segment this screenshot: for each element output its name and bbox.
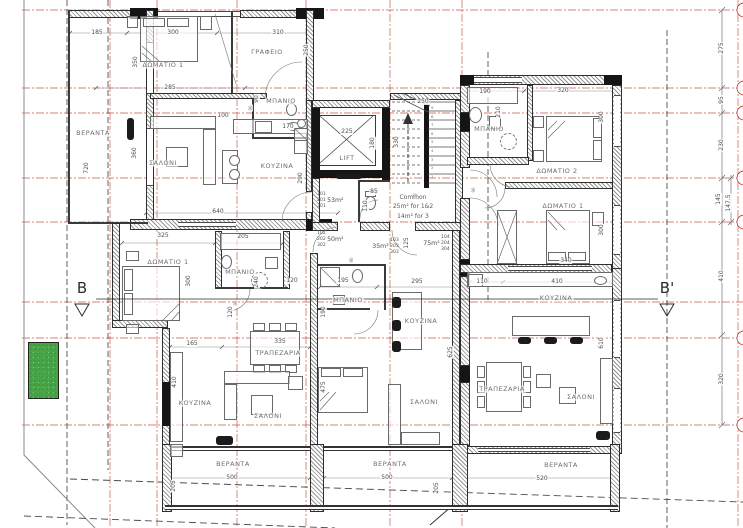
stair-step-number: 5 (431, 140, 433, 144)
dimension-label: 205 (236, 234, 249, 240)
room-label: ΜΠΑΝΙΟ (265, 98, 297, 105)
dimension-label: 147.5 (726, 193, 732, 212)
dimension-label: 335 (273, 339, 286, 345)
dimension-label: 230 (719, 138, 725, 151)
room-label: ΔΩΜΑΤΙΟ 1 (146, 259, 189, 266)
unit-numbers: 10320330335m² (390, 238, 399, 257)
dimension-label: 325 (156, 233, 169, 239)
dimension-label: 250 (416, 99, 429, 105)
dimension-label: 205 (434, 481, 440, 494)
room-label: ΔΩΜΑΤΙΟ 1 (541, 203, 584, 210)
stair-step-number: 4 (431, 149, 433, 153)
unit-area: 35m² (372, 243, 388, 251)
room-label: ΣΑΛΟΝΙ (253, 413, 283, 420)
dimension-label: 240 (254, 275, 260, 288)
dimension-label: 120 (228, 305, 234, 318)
floor-plan: B B' Common 25m² for 1&2 14m² for 3 ΔΩΜΑ… (0, 0, 743, 528)
dimension-label: 300 (166, 30, 179, 36)
dimension-label: 110 (363, 199, 369, 212)
dimension-label: 500 (225, 475, 238, 481)
stair-step-number: 9 (431, 106, 433, 110)
unit-numbers: 10220230250m² (317, 231, 326, 250)
section-marker-b-prime: B' (660, 279, 674, 297)
dimension-label: 190 (321, 305, 327, 318)
unit-area: 53m² (327, 197, 343, 205)
room-label: ΜΠΑΝΙΟ (332, 297, 364, 304)
unit-number: 303 (390, 250, 399, 256)
dimension-label: 410 (719, 269, 725, 282)
dimension-label: 210 (496, 105, 502, 118)
dimension-label: 320 (719, 372, 725, 385)
dimension-label: 190 (478, 89, 491, 95)
dimension-label: 120 (285, 278, 298, 284)
room-label: ΜΠΑΝΙΟ (224, 269, 256, 276)
furniture-details (142, 46, 565, 410)
dimension-label: 285 (163, 85, 176, 91)
dimension-label: 145 (716, 192, 722, 205)
dimension-label: 290 (298, 171, 304, 184)
dimension-label: 300 (599, 223, 605, 236)
dimension-label: 640 (211, 209, 224, 215)
unit-numbers: 10420430475m² (441, 235, 450, 254)
dimension-label: 475 (321, 380, 327, 393)
room-label: ΔΩΜΑΤΙΟ 1 (141, 62, 184, 69)
room-label: LIFT (338, 155, 355, 162)
dimension-label: 225 (340, 129, 353, 135)
section-line (75, 299, 674, 316)
room-label: ΚΟΥΖΙΝΑ (404, 318, 439, 325)
dimension-label: 295 (410, 279, 423, 285)
common-area-note: Common 25m² for 1&2 14m² for 3 (393, 193, 433, 221)
unit-area: 50m² (327, 236, 343, 244)
dimension-label: 500 (380, 475, 393, 481)
room-label: ΤΡΑΠΕΖΑΡΙΑ (478, 386, 526, 393)
dimension-label: 275 (719, 41, 725, 54)
dimension-label: 410 (172, 375, 178, 388)
stair-step-number: 1 (431, 175, 433, 179)
dimension-label: 90 (249, 104, 253, 111)
dimension-label: 350 (133, 55, 139, 68)
dimension-label: 610 (599, 336, 605, 349)
overlay (0, 0, 743, 528)
dimension-label: 90 (254, 94, 260, 104)
dimension-label: 90 (472, 186, 476, 193)
room-label: ΔΩΜΑΤΙΟ 2 (535, 168, 578, 175)
stair-step-number: 6 (431, 132, 433, 136)
dimension-label: 205 (171, 479, 177, 492)
dimension-label: 180 (370, 136, 376, 149)
stair-arrow (403, 113, 413, 182)
unit-numbers: 10120130153m² (317, 192, 326, 211)
dimension-label: 330 (394, 135, 400, 148)
stair-step-number: 2 (431, 166, 433, 170)
room-label: ΒΕΡΑΝΤΑ (543, 462, 579, 469)
dimension-label: 310 (271, 30, 284, 36)
dimension-label: 340 (559, 258, 572, 264)
room-label: ΚΟΥΖΙΝΑ (260, 163, 295, 170)
dimension-label: 125 (404, 236, 410, 249)
dimension-label: 90 (234, 299, 238, 306)
dimension-label: 320 (556, 88, 569, 94)
stair-count: 19 (412, 193, 417, 197)
section-marker-b: B (77, 279, 87, 297)
dimension-label: 300 (599, 110, 605, 123)
room-label: ΒΕΡΑΝΤΑ (372, 461, 408, 468)
room-label: ΣΑΛΟΝΙ (148, 160, 178, 167)
unit-area: 75m² (423, 240, 439, 248)
dimension-label: 300 (186, 274, 192, 287)
room-label: ΣΑΛΟΝΙ (566, 394, 596, 401)
stair-treads (392, 94, 455, 183)
dimension-label: 360 (132, 146, 138, 159)
unit-number: 302 (317, 243, 326, 249)
dimension-label: 185 (90, 30, 103, 36)
room-label: ΚΟΥΖΙΝΑ (178, 400, 213, 407)
dimension-label: 250 (304, 43, 310, 56)
unit-number: 301 (317, 204, 326, 210)
room-label: ΜΠΑΝΙΟ (473, 126, 505, 133)
room-label: ΚΟΥΖΙΝΑ (539, 295, 574, 302)
dimension-label: 85 (369, 189, 379, 195)
stair-step-number: 8 (431, 115, 433, 119)
room-label: ΤΡΑΠΕΖΑΡΙΑ (254, 350, 302, 357)
common-line2: 25m² for 1&2 (393, 202, 433, 211)
dimension-label: 100 (216, 113, 229, 119)
dimension-label: 720 (84, 161, 90, 174)
dimension-label: 90 (350, 256, 354, 263)
dimension-label: 195 (336, 278, 349, 284)
dimension-label: 170 (281, 124, 294, 130)
unit-number: 304 (441, 247, 450, 253)
room-label: ΣΑΛΟΝΙ (409, 399, 439, 406)
dimension-label: 95 (719, 95, 725, 105)
dimension-label: 410 (550, 279, 563, 285)
room-label: ΒΕΡΑΝΤΑ (215, 461, 251, 468)
stair-step-number: 7 (431, 123, 433, 127)
dimension-label: 165 (185, 341, 198, 347)
dimension-label: 625 (448, 345, 454, 358)
dimension-label: 110 (475, 279, 488, 285)
room-label: ΒΕΡΑΝΤΑ (75, 130, 111, 137)
dimension-label: 520 (535, 476, 548, 482)
stair-step-number: 3 (431, 158, 433, 162)
room-label: ΓΡΑΦΕΙΟ (250, 49, 284, 56)
common-line3: 14m² for 3 (393, 212, 433, 221)
